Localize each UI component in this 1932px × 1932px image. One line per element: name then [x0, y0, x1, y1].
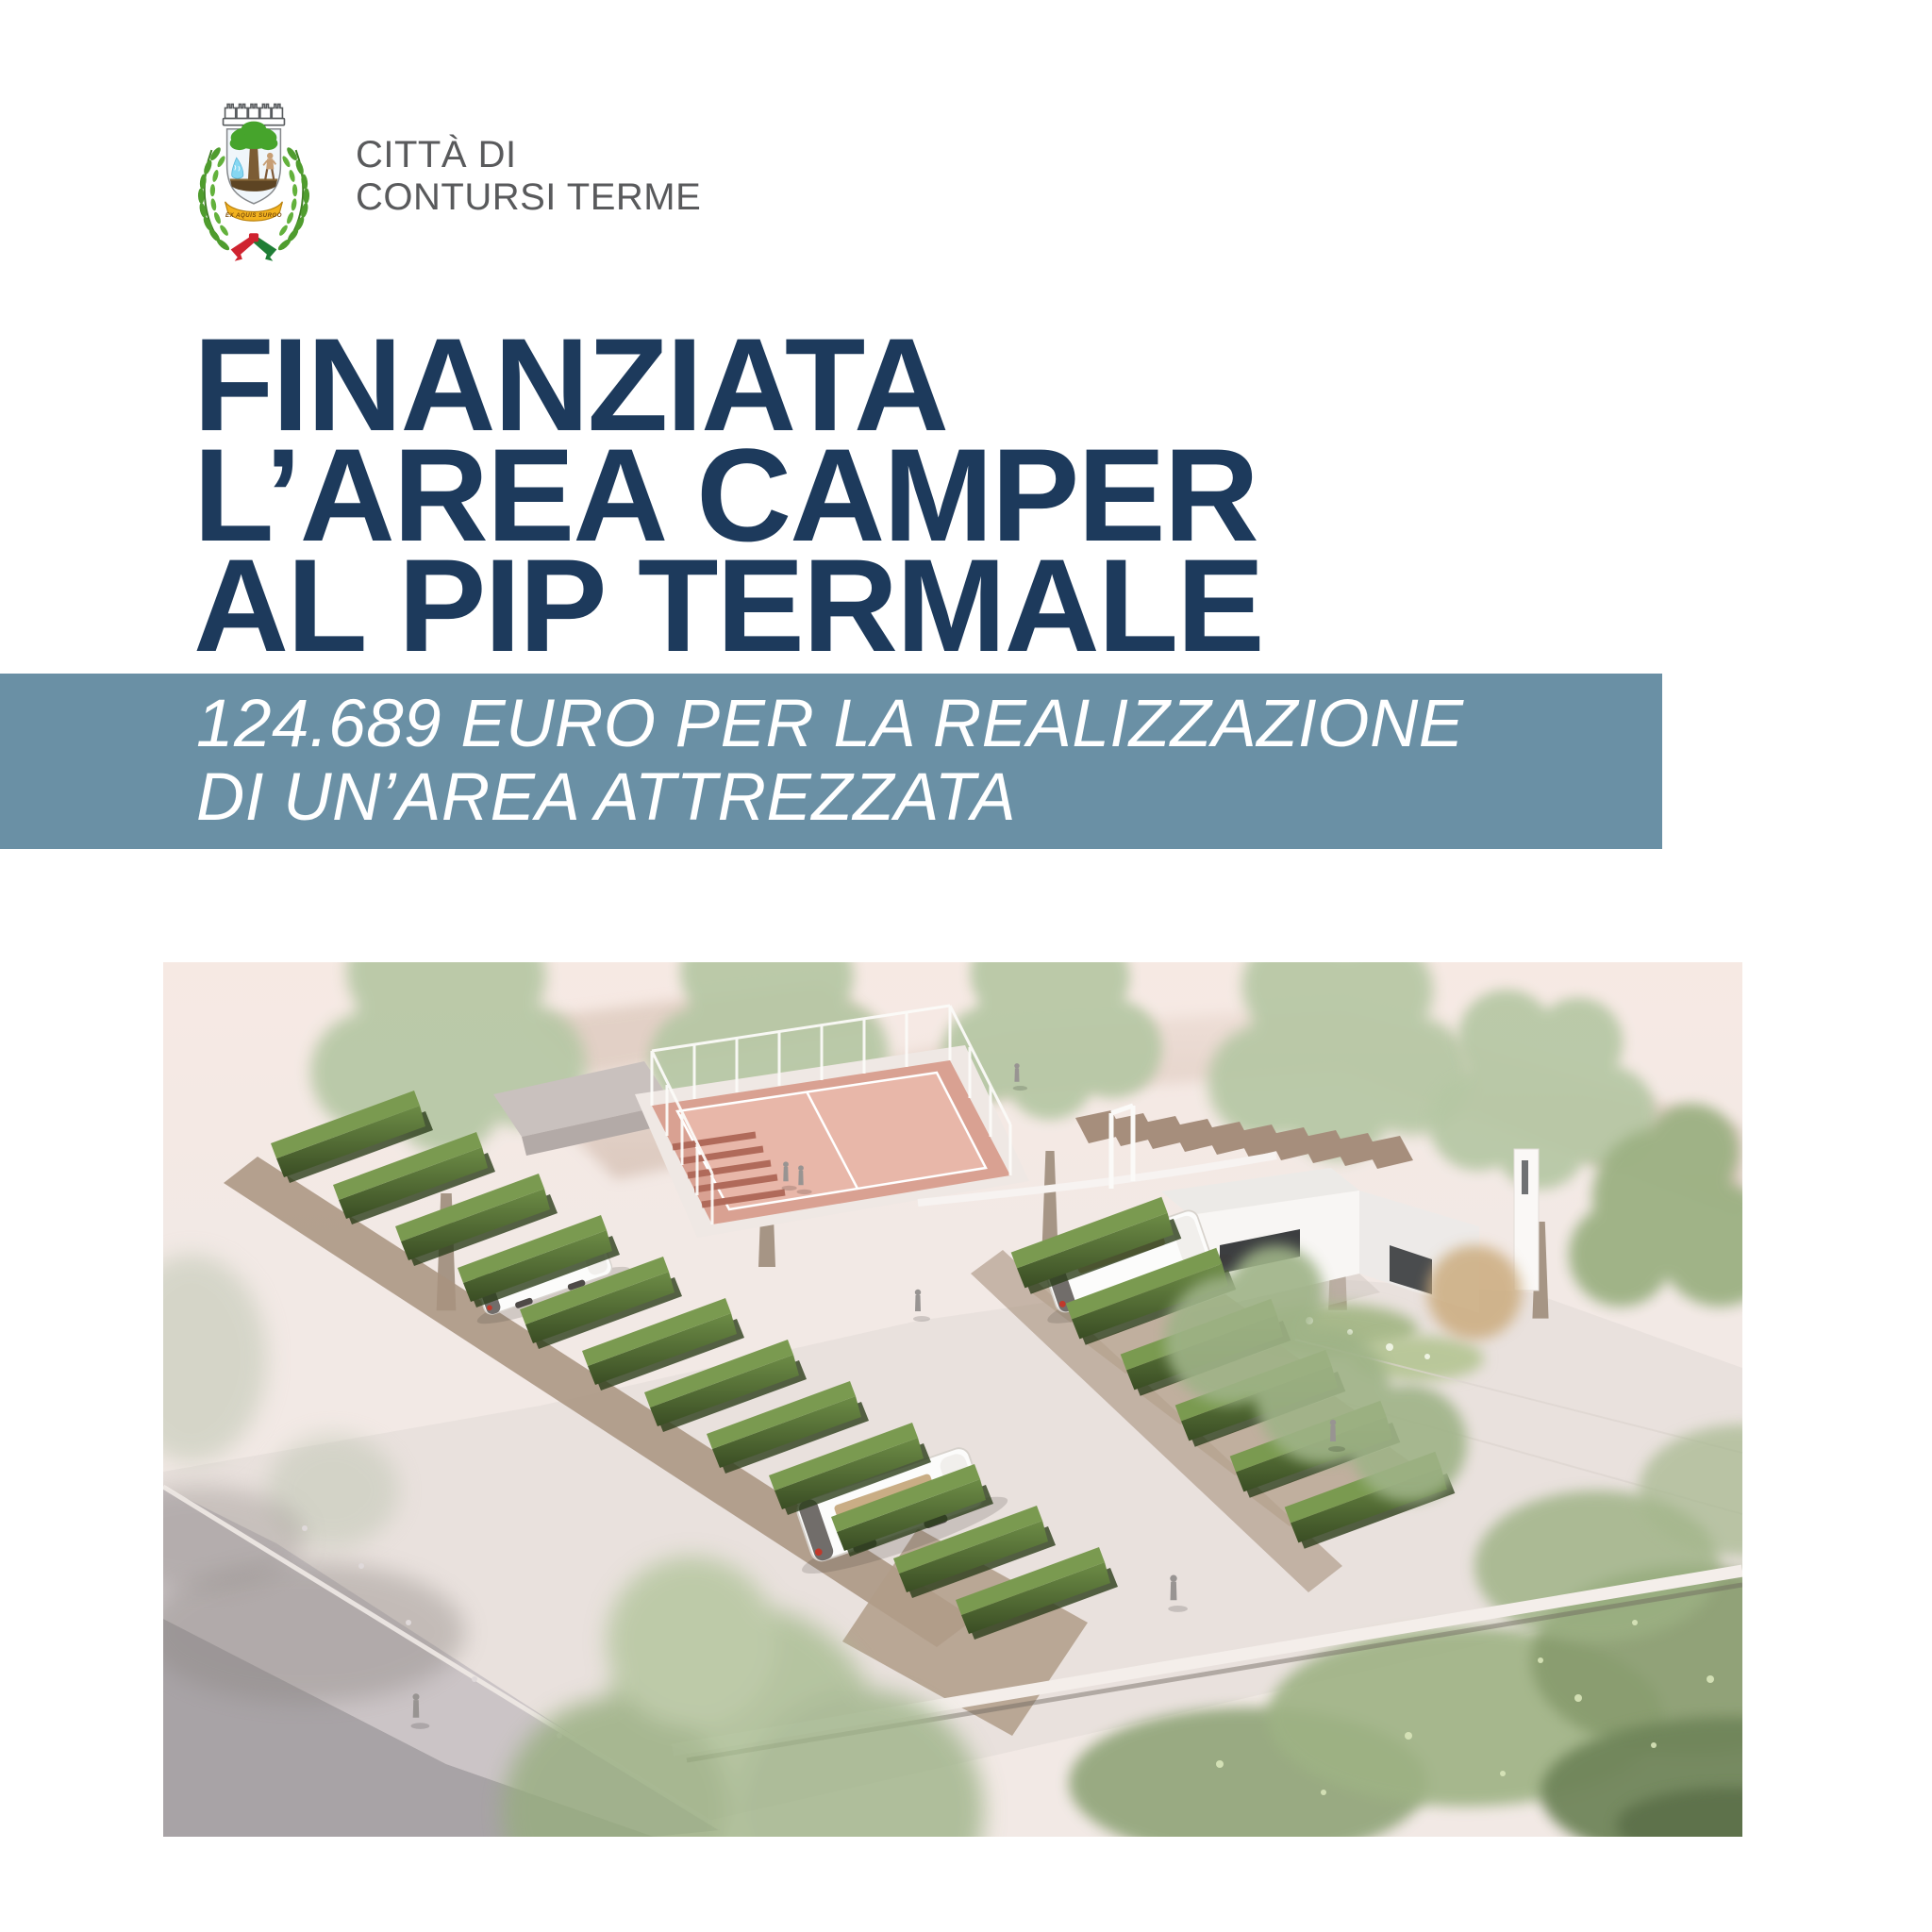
subheadline-banner: 124.689 EURO PER LA REALIZZAZIONE DI UN’… [0, 674, 1662, 849]
banner-line1: 124.689 EURO PER LA REALIZZAZIONE [196, 688, 1662, 761]
crest-shield [227, 122, 281, 204]
camper-area-render [163, 962, 1742, 1837]
banner-line2: DI UN’AREA ATTREZZATA [196, 761, 1662, 835]
org-name-line2: CONTURSI TERME [356, 176, 701, 219]
headline-line3: AL PIP TERMALE [193, 550, 1263, 660]
announcement-poster: EX AQUIS SURGO [0, 0, 1932, 1932]
org-name-line1: CITTÀ DI [356, 134, 701, 176]
crest-ribbon [231, 233, 277, 260]
org-name: CITTÀ DI CONTURSI TERME [356, 134, 701, 219]
crest-motto: EX AQUIS SURGO [225, 212, 282, 219]
crest-tree-trunk [248, 146, 259, 180]
headline: FINANZIATA L’AREA CAMPER AL PIP TERMALE [193, 329, 1263, 660]
city-crest-icon: EX AQUIS SURGO [187, 91, 321, 268]
crest-motto-band: EX AQUIS SURGO [225, 202, 283, 221]
